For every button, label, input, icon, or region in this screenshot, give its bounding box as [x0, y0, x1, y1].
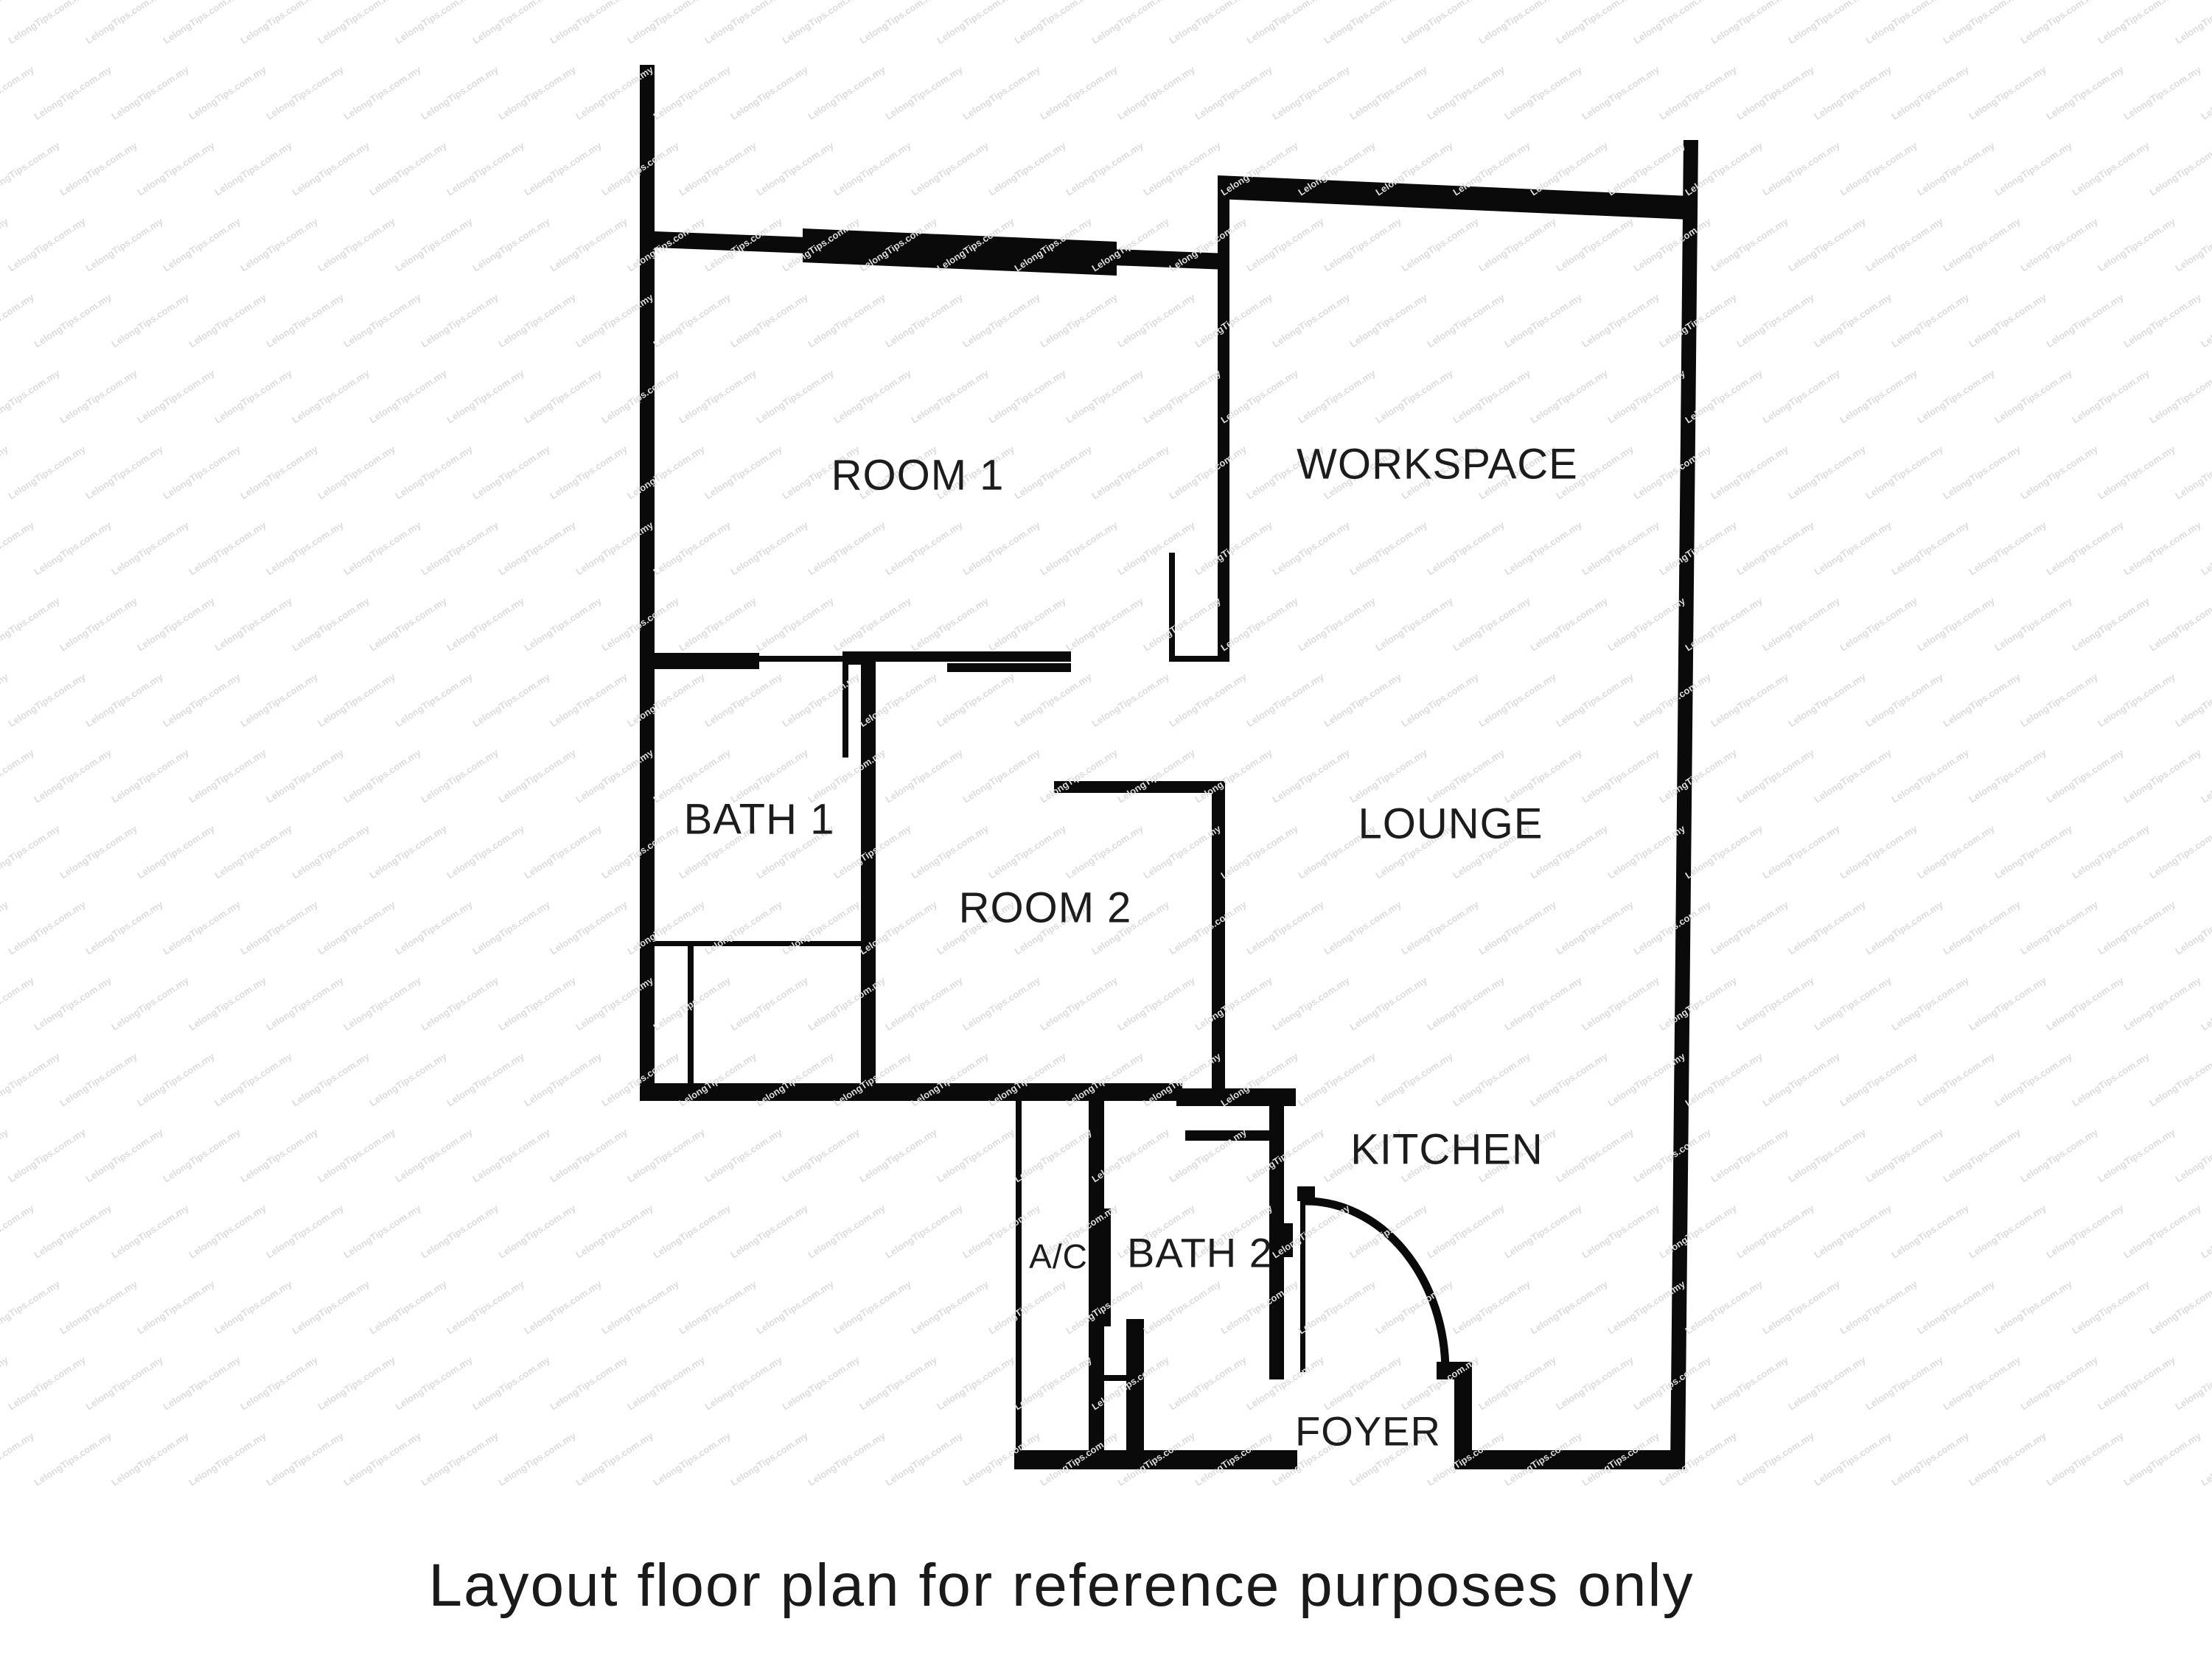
wall-entry-door-leaf: [1300, 1201, 1305, 1372]
watermark-text: LelongTips.com.my: [1141, 1278, 1223, 1336]
watermark-text: LelongTips.com.my: [935, 1126, 1016, 1184]
watermark-text: LelongTips.com.my: [2044, 1202, 2126, 1260]
watermark-text: LelongTips.com.my: [186, 291, 268, 349]
watermark-text: LelongTips.com.my: [290, 595, 371, 653]
watermark-text: LelongTips.com.my: [1141, 139, 1223, 197]
watermark-text: LelongTips.com.my: [57, 367, 139, 425]
watermark-text: LelongTips.com.my: [0, 1050, 62, 1108]
watermark-text: LelongTips.com.my: [548, 1354, 629, 1412]
watermark-text: LelongTips.com.my: [1038, 63, 1120, 122]
watermark-text: LelongTips.com.my: [1554, 215, 1636, 273]
watermark-text: LelongTips.com.my: [806, 1202, 887, 1260]
watermark-text: LelongTips.com.my: [1812, 1430, 1894, 1488]
watermark-text: LelongTips.com.my: [2096, 1354, 2177, 1412]
watermark-text: LelongTips.com.my: [1967, 63, 2048, 122]
watermark-text: LelongTips.com.my: [1889, 1202, 1971, 1260]
watermark-text: LelongTips.com.my: [238, 1126, 320, 1184]
watermark-text: LelongTips.com.my: [1734, 519, 1816, 577]
watermark-text: LelongTips.com.my: [780, 671, 862, 729]
watermark-text: LelongTips.com.my: [496, 974, 578, 1032]
watermark-text: LelongTips.com.my: [548, 443, 629, 501]
floorplan-svg: LelongTips.com.myLelongTips.com.myLelong…: [0, 0, 2212, 1658]
watermark-text: LelongTips.com.my: [1218, 595, 1300, 653]
watermark-text: LelongTips.com.my: [161, 443, 243, 501]
watermark-text: LelongTips.com.my: [2121, 746, 2203, 805]
watermark-text: LelongTips.com.my: [2096, 443, 2177, 501]
watermark-text: LelongTips.com.my: [0, 519, 36, 577]
watermark-text: LelongTips.com.my: [1322, 1354, 1403, 1412]
watermark-text: LelongTips.com.my: [1193, 63, 1274, 122]
watermark-text: LelongTips.com.my: [1141, 595, 1223, 653]
watermark-text: LelongTips.com.my: [419, 519, 500, 577]
watermark-text: LelongTips.com.my: [2121, 1202, 2203, 1260]
watermark-text: LelongTips.com.my: [1373, 367, 1455, 425]
watermark-text: LelongTips.com.my: [548, 1126, 629, 1184]
watermark-text: LelongTips.com.my: [0, 595, 62, 653]
watermark-text: LelongTips.com.my: [883, 1202, 965, 1260]
watermark-text: LelongTips.com.my: [1863, 443, 1945, 501]
watermark-text: LelongTips.com.my: [1709, 1126, 1790, 1184]
watermark-text: LelongTips.com.my: [1992, 139, 2074, 197]
watermark-text: LelongTips.com.my: [419, 1430, 500, 1488]
watermark-text: LelongTips.com.my: [109, 63, 191, 122]
watermark-text: LelongTips.com.my: [83, 215, 165, 273]
watermark-text: LelongTips.com.my: [1347, 63, 1429, 122]
watermark-text: LelongTips.com.my: [161, 0, 243, 46]
watermark-text: LelongTips.com.my: [2018, 898, 2100, 956]
watermark-text: LelongTips.com.my: [2096, 0, 2177, 46]
watermark-text: LelongTips.com.my: [135, 1050, 217, 1108]
watermark-text: LelongTips.com.my: [161, 215, 243, 273]
watermark-text: LelongTips.com.my: [1296, 1050, 1378, 1108]
watermark-text: LelongTips.com.my: [161, 1354, 243, 1412]
watermark-text: LelongTips.com.my: [935, 1354, 1016, 1412]
watermark-text: LelongTips.com.my: [2096, 898, 2177, 956]
watermark-text: LelongTips.com.my: [522, 1050, 604, 1108]
watermark-text: LelongTips.com.my: [264, 974, 346, 1032]
watermark-text: LelongTips.com.my: [857, 1354, 939, 1412]
watermark-text: LelongTips.com.my: [32, 746, 114, 805]
watermark-text: LelongTips.com.my: [1167, 671, 1249, 729]
watermark-text: LelongTips.com.my: [419, 291, 500, 349]
watermark-text: LelongTips.com.my: [1967, 974, 2048, 1032]
watermark-text: LelongTips.com.my: [1502, 974, 1584, 1032]
watermark-text: LelongTips.com.my: [83, 443, 165, 501]
watermark-text: LelongTips.com.my: [135, 139, 217, 197]
wall-bath1-inner-divider-v: [688, 946, 694, 1083]
watermark-text: LelongTips.com.my: [883, 519, 965, 577]
watermark-text: LelongTips.com.my: [212, 1050, 294, 1108]
watermark-text: LelongTips.com.my: [677, 595, 758, 653]
watermark-text: LelongTips.com.my: [1502, 519, 1584, 577]
watermark-text: LelongTips.com.my: [522, 822, 604, 881]
watermark-text: LelongTips.com.my: [1838, 595, 1919, 653]
watermark-text: LelongTips.com.my: [444, 1050, 526, 1108]
watermark-text: LelongTips.com.my: [1889, 519, 1971, 577]
watermark-text: LelongTips.com.my: [0, 974, 36, 1032]
watermark-text: LelongTips.com.my: [1064, 822, 1145, 881]
watermark-text: LelongTips.com.my: [728, 63, 810, 122]
watermark-text: LelongTips.com.my: [2044, 519, 2126, 577]
watermark-text: LelongTips.com.my: [1941, 671, 2023, 729]
watermark-text: LelongTips.com.my: [1889, 974, 1971, 1032]
watermark-text: LelongTips.com.my: [83, 0, 165, 46]
watermark-text: LelongTips.com.my: [1863, 898, 1945, 956]
watermark-text: LelongTips.com.my: [0, 63, 36, 122]
watermark-text: LelongTips.com.my: [522, 367, 604, 425]
watermark-text: LelongTips.com.my: [6, 443, 88, 501]
watermark-text: LelongTips.com.my: [1760, 367, 1842, 425]
watermark-text: LelongTips.com.my: [109, 1430, 191, 1488]
watermark-text: LelongTips.com.my: [1270, 63, 1352, 122]
watermark-text: LelongTips.com.my: [1167, 0, 1249, 46]
watermark-text: LelongTips.com.my: [32, 1202, 114, 1260]
watermark-text: LelongTips.com.my: [2096, 671, 2177, 729]
watermark-text: LelongTips.com.my: [1967, 291, 2048, 349]
watermark-text: LelongTips.com.my: [367, 595, 449, 653]
room-label-ac: A/C: [1029, 1237, 1088, 1276]
watermark-text: LelongTips.com.my: [290, 367, 371, 425]
watermark-text: LelongTips.com.my: [1167, 1354, 1249, 1412]
watermark-text: LelongTips.com.my: [625, 0, 707, 46]
watermark-text: LelongTips.com.my: [625, 898, 707, 956]
watermark-text: LelongTips.com.my: [1605, 367, 1687, 425]
watermark-text: LelongTips.com.my: [2096, 215, 2177, 273]
watermark-text: LelongTips.com.my: [135, 822, 217, 881]
watermark-text: LelongTips.com.my: [444, 367, 526, 425]
watermark-text: LelongTips.com.my: [1244, 898, 1326, 956]
watermark-text: LelongTips.com.my: [702, 1354, 784, 1412]
watermark-text: LelongTips.com.my: [909, 1278, 991, 1336]
watermark-text: LelongTips.com.my: [1038, 746, 1120, 805]
watermark-text: LelongTips.com.my: [1605, 139, 1687, 197]
room-label-room-1: ROOM 1: [831, 452, 1005, 500]
watermark-text: LelongTips.com.my: [161, 671, 243, 729]
watermark-text: LelongTips.com.my: [522, 595, 604, 653]
watermark-text: LelongTips.com.my: [83, 1126, 165, 1184]
watermark-text: LelongTips.com.my: [1915, 822, 1997, 881]
room-label-bath-2: BATH 2: [1127, 1230, 1273, 1276]
watermark-text: LelongTips.com.my: [883, 746, 965, 805]
watermark-text: LelongTips.com.my: [0, 822, 62, 881]
floorplan: LelongTips.com.myLelongTips.com.myLelong…: [0, 0, 2212, 1658]
watermark-text: LelongTips.com.my: [2173, 671, 2212, 729]
wall-bath1-door-stub: [842, 660, 848, 758]
watermark-text: LelongTips.com.my: [1941, 898, 2023, 956]
room-label-room-2: ROOM 2: [959, 884, 1132, 932]
watermark-text: LelongTips.com.my: [470, 671, 552, 729]
watermark-text: LelongTips.com.my: [522, 139, 604, 197]
watermark-text: LelongTips.com.my: [1631, 898, 1713, 956]
watermark-text: LelongTips.com.my: [909, 822, 991, 881]
watermark-text: LelongTips.com.my: [0, 1278, 62, 1336]
watermark-text: LelongTips.com.my: [315, 898, 397, 956]
watermark-text: LelongTips.com.my: [1554, 898, 1636, 956]
watermark-text: LelongTips.com.my: [1657, 63, 1739, 122]
watermark-text: LelongTips.com.my: [186, 63, 268, 122]
watermark-text: LelongTips.com.my: [2018, 0, 2100, 46]
watermark-text: LelongTips.com.my: [212, 367, 294, 425]
watermark-text: LelongTips.com.my: [625, 671, 707, 729]
watermark-text: LelongTips.com.my: [290, 822, 371, 881]
watermark-text: LelongTips.com.my: [6, 898, 88, 956]
watermark-text: LelongTips.com.my: [1244, 1354, 1326, 1412]
watermark-text: LelongTips.com.my: [1580, 63, 1661, 122]
watermark-text: LelongTips.com.my: [1554, 671, 1636, 729]
watermark-text: LelongTips.com.my: [548, 898, 629, 956]
watermark-text: LelongTips.com.my: [315, 0, 397, 46]
watermark-text: LelongTips.com.my: [548, 671, 629, 729]
watermark-text: LelongTips.com.my: [264, 63, 346, 122]
watermark-text: LelongTips.com.my: [754, 139, 836, 197]
watermark-text: LelongTips.com.my: [2018, 1354, 2100, 1412]
watermark-text: LelongTips.com.my: [1012, 1126, 1094, 1184]
watermark-text: LelongTips.com.my: [2121, 63, 2203, 122]
watermark-text: LelongTips.com.my: [728, 1430, 810, 1488]
watermark-text: LelongTips.com.my: [625, 1354, 707, 1412]
watermark-text: LelongTips.com.my: [341, 519, 423, 577]
watermark-text: LelongTips.com.my: [238, 0, 320, 46]
watermark-text: LelongTips.com.my: [1657, 1202, 1739, 1260]
watermark-text: LelongTips.com.my: [651, 1430, 733, 1488]
watermark-text: LelongTips.com.my: [1734, 63, 1816, 122]
watermark-text: LelongTips.com.my: [1425, 1202, 1507, 1260]
watermark-text: LelongTips.com.my: [1476, 898, 1558, 956]
watermark-text: LelongTips.com.my: [1915, 367, 1997, 425]
watermark-text: LelongTips.com.my: [1218, 367, 1300, 425]
watermark-text: LelongTips.com.my: [1167, 898, 1249, 956]
watermark-text: LelongTips.com.my: [702, 1126, 784, 1184]
watermark-text: LelongTips.com.my: [986, 595, 1068, 653]
watermark-text: LelongTips.com.my: [1863, 215, 1945, 273]
watermark-text: LelongTips.com.my: [1786, 671, 1868, 729]
watermark-text: LelongTips.com.my: [161, 898, 243, 956]
watermark-text: LelongTips.com.my: [1941, 0, 2023, 46]
watermark-text: LelongTips.com.my: [1786, 898, 1868, 956]
watermark-text: LelongTips.com.my: [57, 595, 139, 653]
watermark-text: LelongTips.com.my: [315, 215, 397, 273]
wall-bath1-door-header: [759, 656, 842, 662]
watermark-text: LelongTips.com.my: [341, 1430, 423, 1488]
watermark-text: LelongTips.com.my: [1838, 1278, 1919, 1336]
watermark-text: LelongTips.com.my: [677, 139, 758, 197]
watermark-text: LelongTips.com.my: [470, 1126, 552, 1184]
watermark-text: LelongTips.com.my: [212, 822, 294, 881]
watermark-text: LelongTips.com.my: [625, 1126, 707, 1184]
watermark-text: LelongTips.com.my: [2018, 443, 2100, 501]
watermark-text: LelongTips.com.my: [1425, 519, 1507, 577]
watermark-text: LelongTips.com.my: [1760, 139, 1842, 197]
watermark-text: LelongTips.com.my: [367, 1278, 449, 1336]
watermark-text: LelongTips.com.my: [2173, 443, 2212, 501]
watermark-text: LelongTips.com.my: [2121, 974, 2203, 1032]
watermark-text: LelongTips.com.my: [367, 367, 449, 425]
watermark-text: LelongTips.com.my: [32, 974, 114, 1032]
watermark-text: LelongTips.com.my: [883, 1430, 965, 1488]
watermark-text: LelongTips.com.my: [1786, 0, 1868, 46]
watermark-text: LelongTips.com.my: [290, 139, 371, 197]
watermark-text: LelongTips.com.my: [1863, 671, 1945, 729]
watermark-text: LelongTips.com.my: [909, 367, 991, 425]
watermark-text: LelongTips.com.my: [1683, 822, 1765, 881]
room-label-bath-1: BATH 1: [684, 796, 835, 844]
watermark-text: LelongTips.com.my: [1218, 1278, 1300, 1336]
watermark-text: LelongTips.com.my: [1812, 1202, 1894, 1260]
watermark-text: LelongTips.com.my: [1270, 519, 1352, 577]
watermark-text: LelongTips.com.my: [1528, 1050, 1610, 1108]
watermark-text: LelongTips.com.my: [857, 0, 939, 46]
watermark-text: LelongTips.com.my: [444, 1278, 526, 1336]
watermark-text: LelongTips.com.my: [1502, 63, 1584, 122]
caption-text: Layout floor plan for reference purposes…: [0, 1547, 2123, 1629]
watermark-text: LelongTips.com.my: [1347, 291, 1429, 349]
watermark-text: LelongTips.com.my: [496, 1430, 578, 1488]
watermark-text: LelongTips.com.my: [1451, 367, 1532, 425]
watermark-text: LelongTips.com.my: [315, 1354, 397, 1412]
watermark-text: LelongTips.com.my: [1631, 215, 1713, 273]
watermark-text: LelongTips.com.my: [677, 367, 758, 425]
watermark-text: LelongTips.com.my: [935, 671, 1016, 729]
watermark-text: LelongTips.com.my: [2147, 1278, 2212, 1336]
watermark-text: LelongTips.com.my: [986, 822, 1068, 881]
watermark-text: LelongTips.com.my: [1270, 746, 1352, 805]
watermark-text: LelongTips.com.my: [1012, 1354, 1094, 1412]
watermark-text: LelongTips.com.my: [1863, 1354, 1945, 1412]
watermark-text: LelongTips.com.my: [1580, 1202, 1661, 1260]
watermark-text: LelongTips.com.my: [109, 291, 191, 349]
watermark-text: LelongTips.com.my: [212, 595, 294, 653]
watermark-text: LelongTips.com.my: [1786, 1126, 1868, 1184]
watermark-text: LelongTips.com.my: [444, 139, 526, 197]
watermark-text: LelongTips.com.my: [1451, 1050, 1532, 1108]
watermark-text: LelongTips.com.my: [264, 1430, 346, 1488]
watermark-text: LelongTips.com.my: [1451, 595, 1532, 653]
watermark-text: LelongTips.com.my: [883, 291, 965, 349]
watermark-text: LelongTips.com.my: [2070, 139, 2152, 197]
watermark-text: LelongTips.com.my: [1425, 291, 1507, 349]
watermark-text: LelongTips.com.my: [1012, 671, 1094, 729]
watermark-text: LelongTips.com.my: [935, 0, 1016, 46]
watermark-text: LelongTips.com.my: [393, 671, 475, 729]
watermark-text: LelongTips.com.my: [548, 0, 629, 46]
wall-room1-corridor-wall-lower: [947, 663, 1071, 672]
watermark-text: LelongTips.com.my: [651, 1202, 733, 1260]
watermark-text: LelongTips.com.my: [1863, 0, 1945, 46]
watermark-text: LelongTips.com.my: [238, 215, 320, 273]
watermark-text: LelongTips.com.my: [1347, 746, 1429, 805]
watermark-text: LelongTips.com.my: [393, 1354, 475, 1412]
watermark-text: LelongTips.com.my: [1399, 898, 1481, 956]
watermark-text: LelongTips.com.my: [470, 443, 552, 501]
watermark-text: LelongTips.com.my: [2173, 1354, 2212, 1412]
watermark-text: LelongTips.com.my: [1889, 63, 1971, 122]
wall-divider-hook-vertical: [1169, 553, 1175, 662]
watermark-text: LelongTips.com.my: [1193, 746, 1274, 805]
watermark-text: LelongTips.com.my: [1218, 822, 1300, 881]
watermark-text: LelongTips.com.my: [1244, 215, 1326, 273]
watermark-text: LelongTips.com.my: [522, 1278, 604, 1336]
watermark-text: LelongTips.com.my: [1838, 1050, 1919, 1108]
watermark-text: LelongTips.com.my: [1631, 443, 1713, 501]
watermark-text: LelongTips.com.my: [32, 519, 114, 577]
watermark-text: LelongTips.com.my: [6, 1126, 88, 1184]
watermark-text: LelongTips.com.my: [57, 1050, 139, 1108]
watermark-text: LelongTips.com.my: [57, 822, 139, 881]
watermark-text: LelongTips.com.my: [161, 1126, 243, 1184]
watermark-text: LelongTips.com.my: [419, 974, 500, 1032]
watermark-text: LelongTips.com.my: [1244, 671, 1326, 729]
watermark-text: LelongTips.com.my: [754, 367, 836, 425]
watermark-text: LelongTips.com.my: [290, 1278, 371, 1336]
watermark-text: LelongTips.com.my: [1399, 671, 1481, 729]
watermark-text: LelongTips.com.my: [1812, 519, 1894, 577]
watermark-text: LelongTips.com.my: [1734, 974, 1816, 1032]
watermark-text: LelongTips.com.my: [1296, 367, 1378, 425]
watermark-text: LelongTips.com.my: [238, 898, 320, 956]
watermark-text: LelongTips.com.my: [1528, 595, 1610, 653]
watermark-text: LelongTips.com.my: [702, 671, 784, 729]
watermark-text: LelongTips.com.my: [1322, 898, 1403, 956]
watermark-text: LelongTips.com.my: [1554, 1354, 1636, 1412]
watermark-text: LelongTips.com.my: [986, 139, 1068, 197]
watermark-text: LelongTips.com.my: [1502, 746, 1584, 805]
watermark-text: LelongTips.com.my: [83, 671, 165, 729]
watermark-text: LelongTips.com.my: [393, 443, 475, 501]
watermark-text: LelongTips.com.my: [780, 1126, 862, 1184]
watermark-text: LelongTips.com.my: [367, 139, 449, 197]
watermark-text: LelongTips.com.my: [1992, 822, 2074, 881]
watermark-text: LelongTips.com.my: [1992, 367, 2074, 425]
watermark-text: LelongTips.com.my: [1941, 443, 2023, 501]
watermark-text: LelongTips.com.my: [780, 898, 862, 956]
watermark-text: LelongTips.com.my: [1296, 595, 1378, 653]
watermark-text: LelongTips.com.my: [1631, 671, 1713, 729]
watermark-text: LelongTips.com.my: [2044, 974, 2126, 1032]
watermark-text: LelongTips.com.my: [1992, 1050, 2074, 1108]
watermark-text: LelongTips.com.my: [1786, 215, 1868, 273]
watermark-text: LelongTips.com.my: [444, 822, 526, 881]
watermark-text: LelongTips.com.my: [1709, 443, 1790, 501]
watermark-text: LelongTips.com.my: [857, 1126, 939, 1184]
watermark-text: LelongTips.com.my: [1554, 1126, 1636, 1184]
watermark-text: LelongTips.com.my: [2018, 671, 2100, 729]
watermark-text: LelongTips.com.my: [135, 367, 217, 425]
watermark-text: LelongTips.com.my: [548, 215, 629, 273]
watermark-text: LelongTips.com.my: [6, 1354, 88, 1412]
watermark-text: LelongTips.com.my: [625, 443, 707, 501]
watermark-text: LelongTips.com.my: [960, 519, 1042, 577]
watermark-text: LelongTips.com.my: [341, 746, 423, 805]
watermark-text: LelongTips.com.my: [1760, 595, 1842, 653]
watermark-text: LelongTips.com.my: [1476, 1354, 1558, 1412]
watermark-text: LelongTips.com.my: [702, 898, 784, 956]
watermark-text: LelongTips.com.my: [1889, 291, 1971, 349]
watermark-text: LelongTips.com.my: [1657, 519, 1739, 577]
watermark-text: LelongTips.com.my: [1141, 367, 1223, 425]
watermark-text: LelongTips.com.my: [264, 519, 346, 577]
watermark-text: LelongTips.com.my: [1915, 595, 1997, 653]
watermark-text: LelongTips.com.my: [831, 595, 913, 653]
watermark-text: LelongTips.com.my: [2121, 291, 2203, 349]
watermark-text: LelongTips.com.my: [1425, 746, 1507, 805]
watermark-text: LelongTips.com.my: [1941, 1354, 2023, 1412]
watermark-text: LelongTips.com.my: [1012, 0, 1094, 46]
watermark-text: LelongTips.com.my: [109, 519, 191, 577]
watermark-text: LelongTips.com.my: [1502, 291, 1584, 349]
watermark-text: LelongTips.com.my: [1064, 139, 1145, 197]
watermark-text: LelongTips.com.my: [1709, 215, 1790, 273]
watermark-text: LelongTips.com.my: [1580, 974, 1661, 1032]
